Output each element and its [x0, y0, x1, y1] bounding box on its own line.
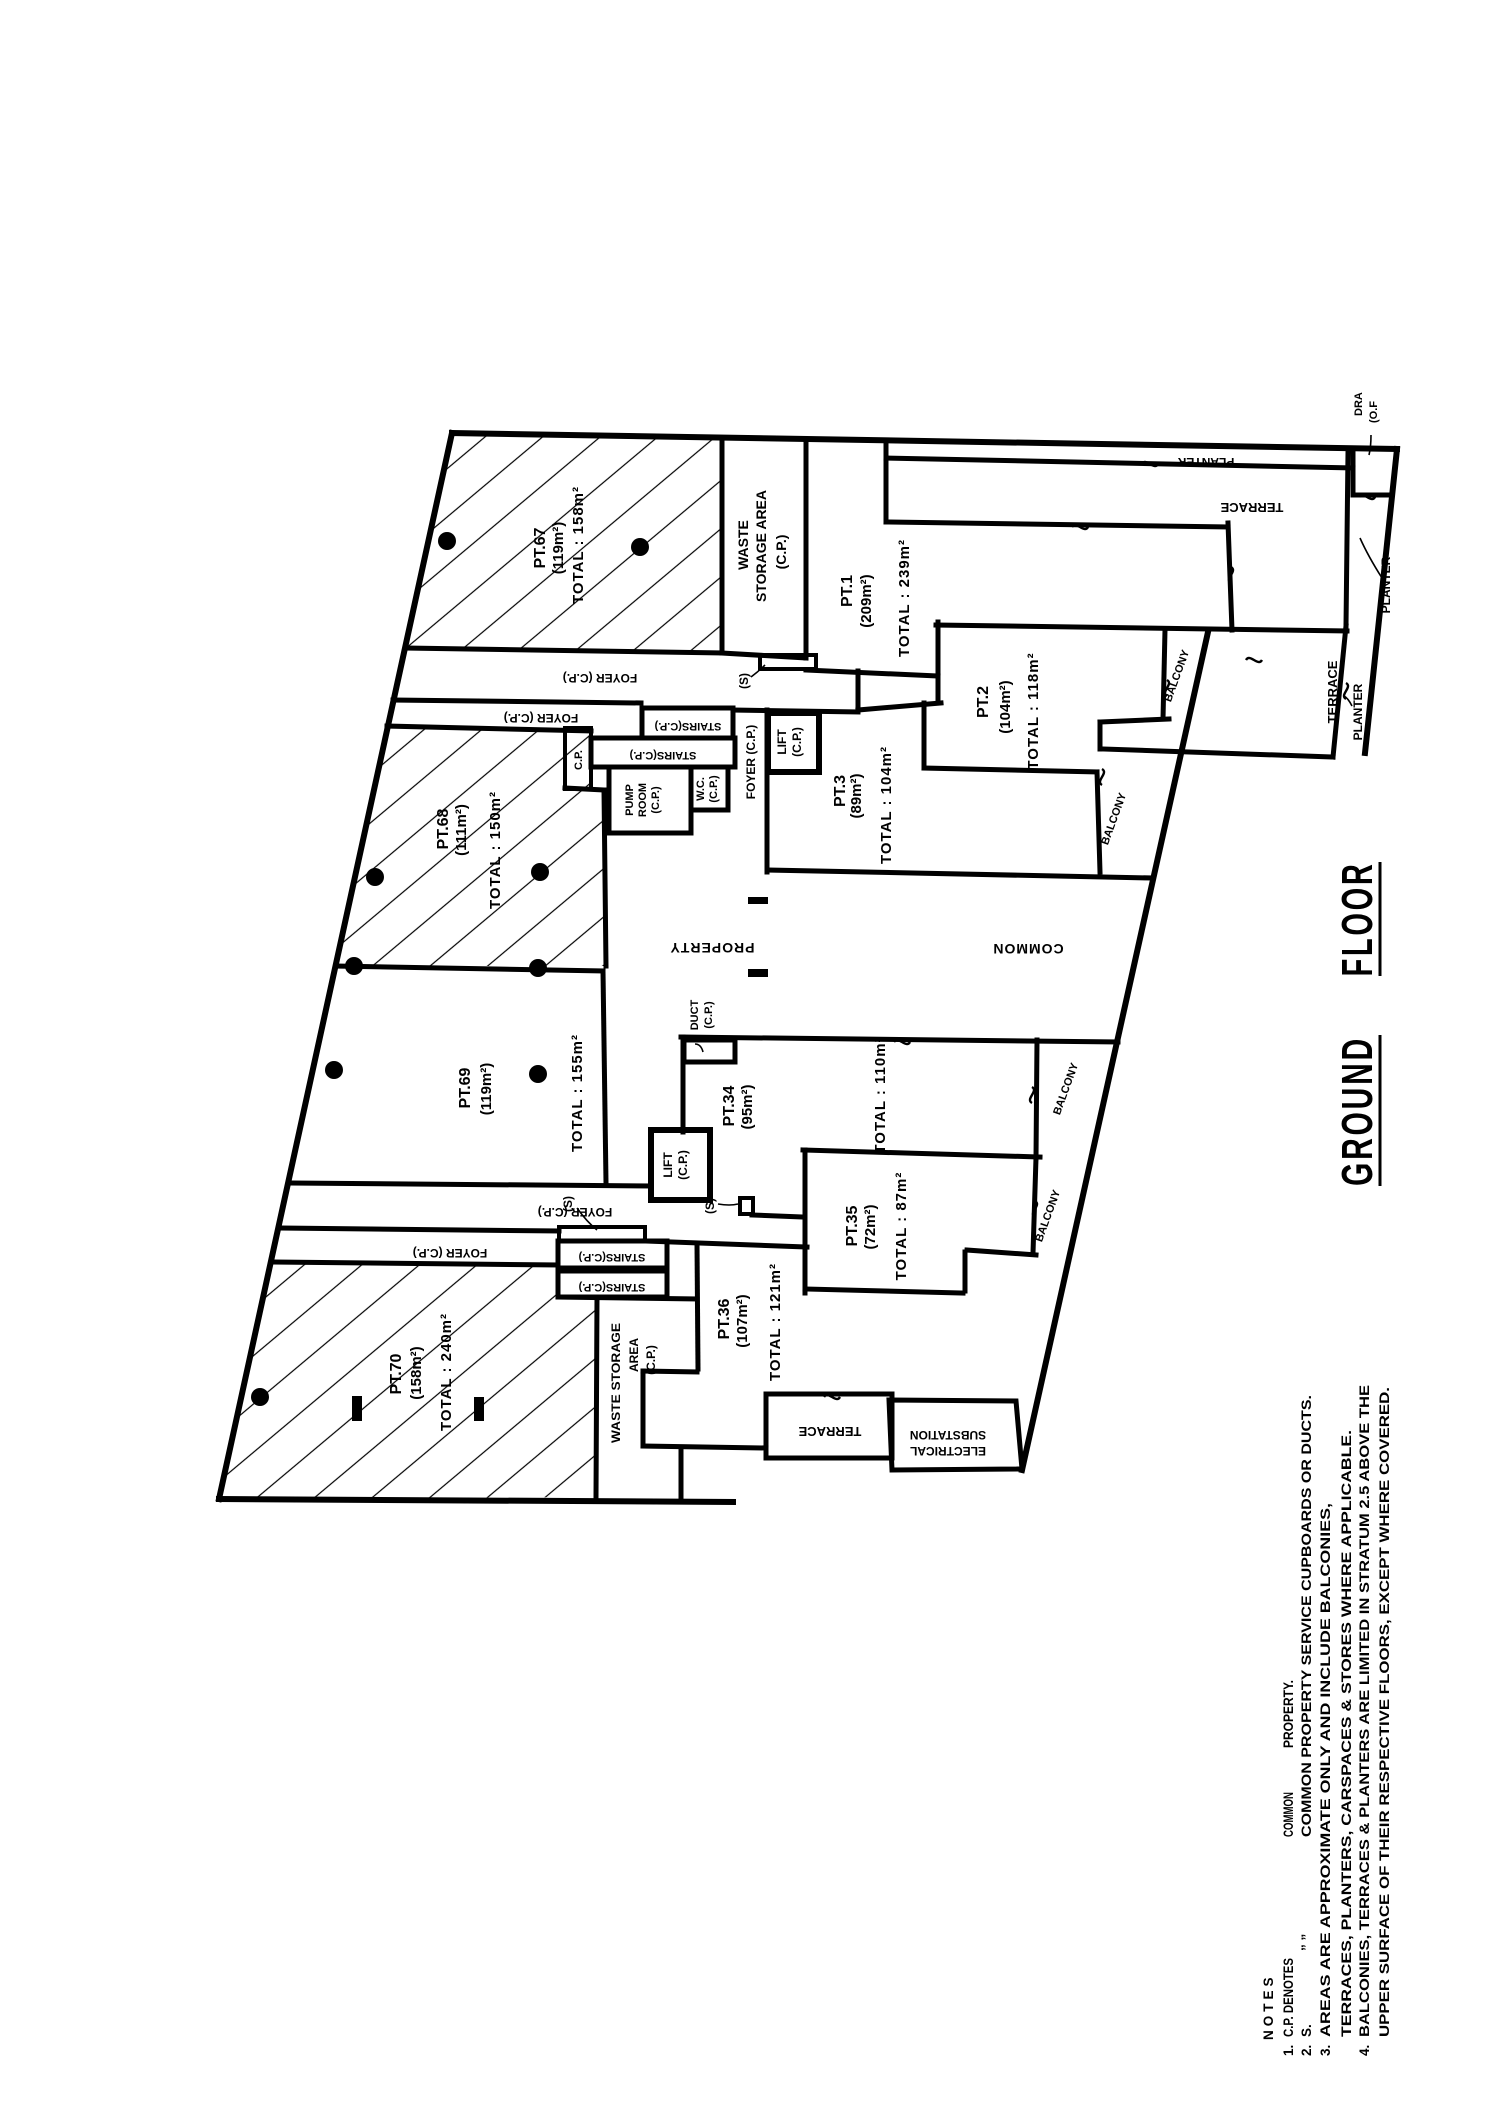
- svg-text:(107m²): (107m²): [734, 1294, 751, 1347]
- svg-text:TERRACE: TERRACE: [798, 1424, 861, 1439]
- svg-text:(111m²): (111m²): [453, 804, 470, 856]
- svg-text:PLANTER: PLANTER: [1379, 556, 1393, 613]
- svg-text:LIFT: LIFT: [775, 729, 789, 755]
- svg-text:FOYER (C.P.): FOYER (C.P.): [413, 1246, 487, 1260]
- svg-text:(C.P.): (C.P.): [650, 786, 662, 814]
- svg-text:TOTAL : 121m²: TOTAL : 121m²: [767, 1263, 784, 1381]
- svg-text:TOTAL : 150m²: TOTAL : 150m²: [487, 791, 504, 909]
- svg-text:TOTAL : 158m²: TOTAL : 158m²: [570, 486, 587, 604]
- svg-text:(C.P.): (C.P.): [644, 1345, 658, 1375]
- svg-text:(C.P.): (C.P.): [703, 1001, 715, 1029]
- svg-text:WASTE: WASTE: [735, 520, 751, 570]
- svg-text:PLANTER: PLANTER: [1351, 683, 1365, 740]
- svg-text:GROUND: GROUND: [1333, 1036, 1382, 1186]
- svg-text:TERRACE: TERRACE: [1220, 500, 1283, 515]
- svg-text:FLOOR: FLOOR: [1333, 862, 1382, 977]
- svg-text:(119m²): (119m²): [478, 1063, 495, 1116]
- svg-text:COMMON PROPERTY SERVICE CUP: COMMON PROPERTY SERVICE CUPBOARDS OR DUC…: [1299, 1395, 1314, 1837]
- svg-text:(119m²): (119m²): [550, 522, 567, 575]
- svg-text:PT.34: PT.34: [721, 1085, 738, 1126]
- svg-text:(C.P.): (C.P.): [676, 1150, 690, 1180]
- svg-text:AREAS ARE APPROXIMATE ONLY AND: AREAS ARE APPROXIMATE ONLY AND INCLUDE B…: [1318, 1503, 1333, 2037]
- svg-text:(72m²): (72m²): [862, 1204, 879, 1249]
- svg-text:PT.69: PT.69: [457, 1067, 474, 1108]
- svg-text:AREA: AREA: [627, 1338, 641, 1372]
- svg-text:S.: S.: [1299, 2024, 1314, 2037]
- svg-text:DUCT: DUCT: [689, 999, 701, 1030]
- svg-text:TOTAL : 239m²: TOTAL : 239m²: [896, 539, 913, 657]
- svg-text:1.: 1.: [1281, 2045, 1296, 2056]
- svg-text:(209m²): (209m²): [858, 574, 875, 627]
- svg-text:TOTAL : 110m²: TOTAL : 110m²: [872, 1036, 889, 1153]
- svg-text:FOYER (C.P.): FOYER (C.P.): [563, 671, 637, 685]
- svg-text:PT.1: PT.1: [839, 575, 856, 607]
- svg-text:SUBSTATION: SUBSTATION: [910, 1428, 986, 1442]
- svg-text:TOTAL : 240m²: TOTAL : 240m²: [438, 1313, 455, 1431]
- svg-text:PT.36: PT.36: [716, 1298, 733, 1339]
- svg-text:(158m²): (158m²): [408, 1346, 425, 1399]
- svg-text:TERRACES, PLANTERS, CARSPACES: TERRACES, PLANTERS, CARSPACES & STORES W…: [1339, 1430, 1354, 2037]
- svg-text:PT.70: PT.70: [388, 1353, 405, 1394]
- svg-text:(95m²): (95m²): [739, 1084, 756, 1129]
- svg-text:PT.68: PT.68: [435, 808, 452, 849]
- svg-text:PT.2: PT.2: [975, 686, 992, 718]
- svg-text:(104m²): (104m²): [997, 680, 1014, 733]
- svg-text:(89m²): (89m²): [848, 773, 865, 818]
- svg-text:C.P. DENOTES: C.P. DENOTES: [1281, 1958, 1296, 2037]
- svg-text:C.P.: C.P.: [573, 750, 585, 770]
- svg-text:ELECTRICAL: ELECTRICAL: [910, 1444, 986, 1458]
- svg-text:” ”: ” ”: [1299, 1934, 1314, 1951]
- svg-text:(S): (S): [703, 1198, 717, 1214]
- svg-text:TOTAL : 118m²: TOTAL : 118m²: [1025, 652, 1042, 769]
- svg-text:(S): (S): [737, 673, 751, 689]
- svg-text:(C.P.): (C.P.): [790, 727, 804, 757]
- svg-text:LIFT: LIFT: [661, 1152, 675, 1178]
- svg-text:COMMON: COMMON: [992, 941, 1063, 957]
- svg-text:PUMP: PUMP: [624, 784, 636, 816]
- svg-text:STAIRS(C.P.): STAIRS(C.P.): [578, 1281, 645, 1293]
- svg-text:TOTAL : 104m²: TOTAL : 104m²: [878, 746, 895, 864]
- svg-text:FOYER (C.P.): FOYER (C.P.): [744, 725, 758, 799]
- svg-text:PLANTER: PLANTER: [1177, 455, 1234, 469]
- svg-text:UPPER SURFACE OF THEIR RESPECT: UPPER SURFACE OF THEIR RESPECTIVE FLOORS…: [1377, 1387, 1392, 2037]
- svg-text:BALCONIES, TERRACES & PLANTERS: BALCONIES, TERRACES & PLANTERS ARE LIMIT…: [1357, 1385, 1372, 2037]
- svg-text:TOTAL : 87m²: TOTAL : 87m²: [893, 1172, 910, 1281]
- svg-text:STAIRS(C.P.): STAIRS(C.P.): [654, 720, 721, 732]
- svg-text:PROPERTY: PROPERTY: [669, 940, 754, 956]
- svg-text:PT.3: PT.3: [832, 775, 849, 807]
- svg-text:ROOM: ROOM: [637, 783, 649, 817]
- svg-text:TERRACE: TERRACE: [1325, 660, 1340, 723]
- svg-text:3.: 3.: [1318, 2045, 1333, 2056]
- svg-text:2.: 2.: [1299, 2045, 1314, 2056]
- svg-text:STAIRS(C.P.): STAIRS(C.P.): [578, 1251, 645, 1263]
- svg-text:WASTE STORAGE: WASTE STORAGE: [609, 1323, 623, 1443]
- svg-text:DRA: DRA: [1353, 392, 1365, 416]
- svg-text:COMMON: COMMON: [1281, 1792, 1296, 1837]
- svg-text:FOYER (C.P.): FOYER (C.P.): [504, 711, 578, 725]
- svg-text:(O.F: (O.F: [1368, 401, 1380, 423]
- svg-text:STORAGE AREA: STORAGE AREA: [753, 490, 769, 602]
- svg-text:(C.P.): (C.P.): [708, 775, 720, 803]
- svg-text:4.: 4.: [1357, 2045, 1372, 2056]
- svg-text:NOTES: NOTES: [1261, 1973, 1276, 2040]
- svg-text:PT.67: PT.67: [532, 527, 549, 568]
- svg-text:STAIRS(C.P.): STAIRS(C.P.): [629, 749, 696, 761]
- svg-text:(C.P.): (C.P.): [773, 535, 789, 570]
- svg-text:TOTAL : 155m²: TOTAL : 155m²: [569, 1034, 586, 1152]
- svg-text:W.C.: W.C.: [695, 777, 707, 801]
- svg-text:FOYER (C.P.): FOYER (C.P.): [538, 1205, 612, 1219]
- svg-text:PROPERTY.: PROPERTY.: [1281, 1680, 1296, 1748]
- svg-text:PT.35: PT.35: [844, 1205, 861, 1246]
